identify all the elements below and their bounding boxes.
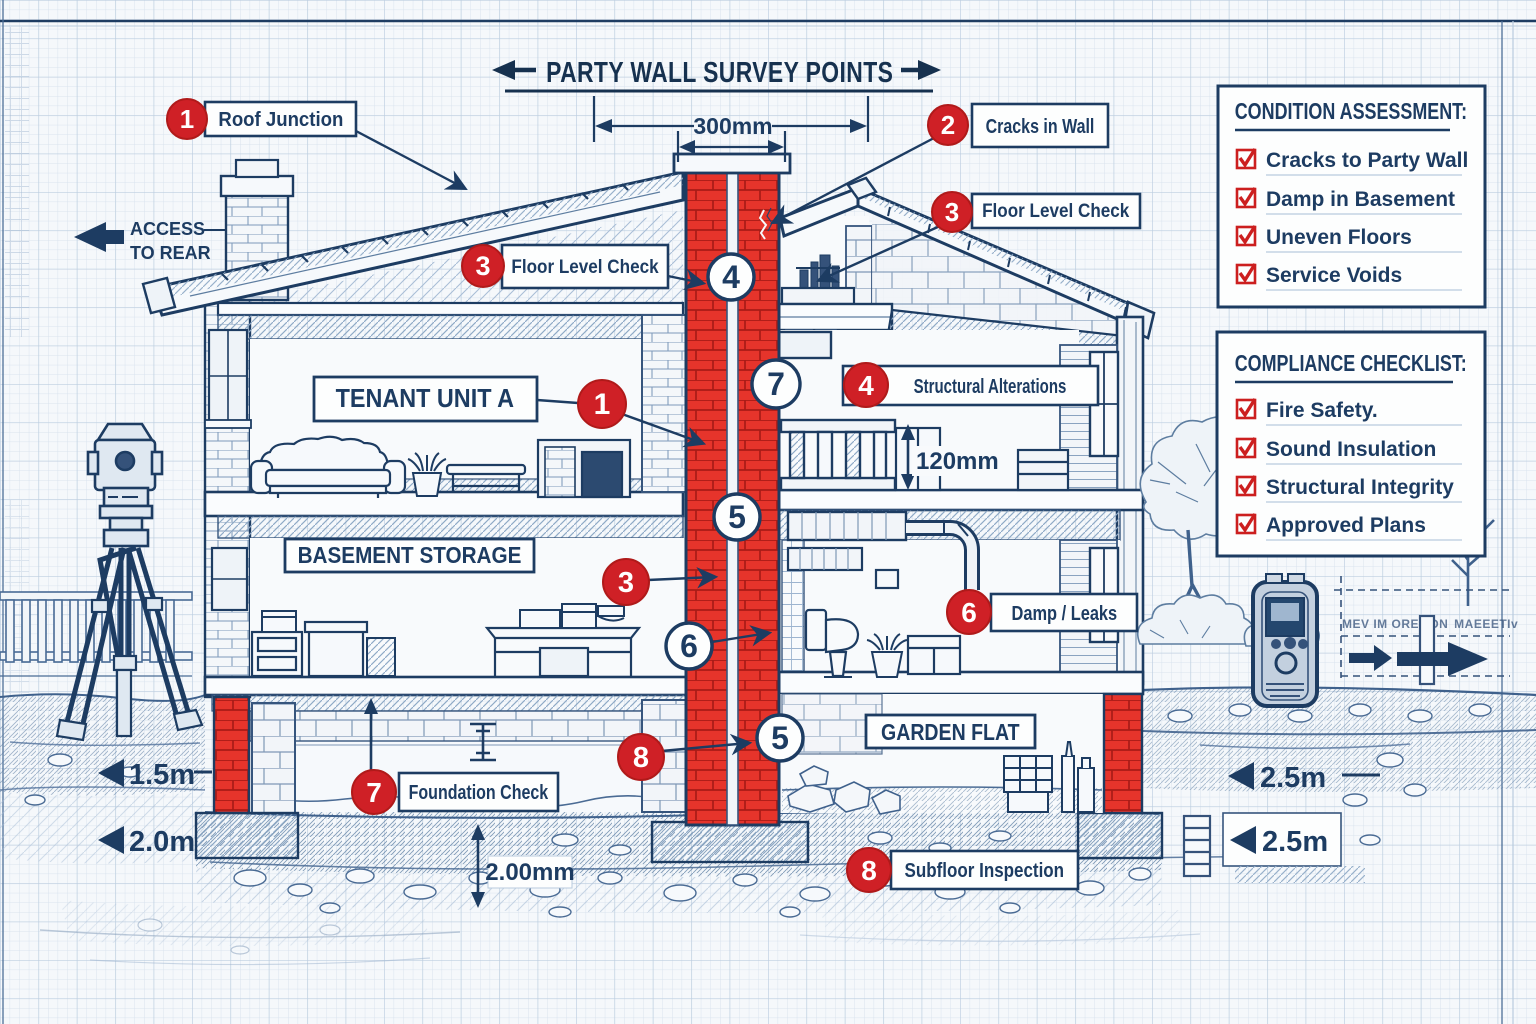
svg-text:Subfloor Inspection: Subfloor Inspection (905, 859, 1064, 882)
svg-text:2.0m: 2.0m (129, 826, 195, 858)
svg-text:TO REAR: TO REAR (130, 243, 211, 263)
svg-text:1.5m: 1.5m (129, 759, 195, 791)
svg-text:Structural Integrity: Structural Integrity (1266, 476, 1454, 499)
svg-text:Damp / Leaks: Damp / Leaks (1012, 601, 1118, 624)
svg-text:Service Voids: Service Voids (1266, 264, 1402, 287)
svg-text:2.5m: 2.5m (1262, 826, 1328, 858)
svg-text:2.5m: 2.5m (1260, 762, 1326, 794)
svg-text:Foundation Check: Foundation Check (409, 781, 549, 803)
svg-text:Uneven Floors: Uneven Floors (1266, 226, 1412, 249)
svg-text:Fire Safety.: Fire Safety. (1266, 399, 1378, 422)
svg-text:Cracks to Party Wall: Cracks to Party Wall (1266, 149, 1468, 172)
svg-text:CONDITION ASSESSMENT:: CONDITION ASSESSMENT: (1235, 99, 1467, 125)
svg-text:6: 6 (680, 628, 698, 664)
svg-text:5: 5 (771, 720, 789, 756)
svg-text:8: 8 (861, 855, 877, 886)
svg-text:Damp in Basement: Damp in Basement (1266, 188, 1455, 211)
svg-text:1: 1 (180, 104, 194, 134)
svg-text:PARTY WALL SURVEY POINTS: PARTY WALL SURVEY POINTS (546, 55, 893, 88)
svg-text:Roof Junction: Roof Junction (218, 109, 343, 131)
svg-text:Floor Level Check: Floor Level Check (982, 200, 1130, 221)
svg-text:3: 3 (475, 251, 490, 281)
svg-text:BASEMENT STORAGE: BASEMENT STORAGE (298, 542, 522, 568)
svg-text:7: 7 (767, 366, 785, 402)
svg-text:ACCESS: ACCESS (130, 219, 205, 239)
svg-text:5: 5 (728, 499, 746, 535)
svg-text:Sound Insulation: Sound Insulation (1266, 438, 1436, 461)
svg-text:Approved Plans: Approved Plans (1266, 514, 1426, 537)
svg-text:8: 8 (633, 742, 649, 774)
svg-text:COMPLIANCE CHECKLIST:: COMPLIANCE CHECKLIST: (1235, 351, 1467, 377)
svg-text:2.00mm: 2.00mm (485, 859, 574, 886)
svg-text:3: 3 (945, 197, 959, 227)
svg-text:1: 1 (594, 388, 611, 421)
svg-text:TENANT UNIT A: TENANT UNIT A (336, 385, 515, 413)
svg-text:2: 2 (941, 110, 955, 140)
svg-text:3: 3 (618, 567, 634, 599)
svg-text:Cracks in Wall: Cracks in Wall (986, 115, 1095, 137)
svg-text:7: 7 (366, 777, 382, 808)
svg-text:6: 6 (961, 597, 977, 628)
svg-text:4: 4 (858, 370, 874, 401)
svg-text:Structural Alterations: Structural Alterations (914, 375, 1067, 398)
svg-text:4: 4 (722, 259, 740, 295)
svg-text:120mm: 120mm (916, 448, 999, 475)
svg-text:300mm: 300mm (693, 113, 772, 139)
svg-text:GARDEN FLAT: GARDEN FLAT (881, 720, 1020, 746)
svg-text:Floor Level Check: Floor Level Check (511, 256, 659, 277)
